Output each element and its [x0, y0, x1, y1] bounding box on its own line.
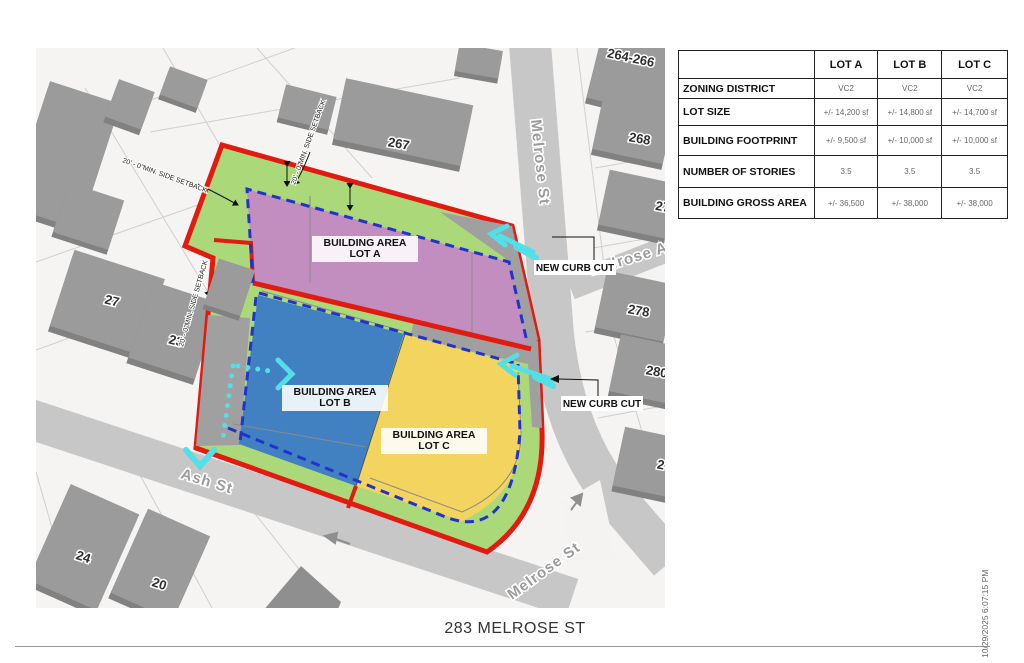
table-corner-cell — [679, 51, 815, 79]
table-row: LOT SIZE +/- 14,200 sf +/- 14,800 sf +/-… — [679, 99, 1008, 126]
title-block-rule — [15, 646, 990, 647]
table-row: NUMBER OF STORIES 3.5 3.5 3.5 — [679, 156, 1008, 188]
table-row: BUILDING FOOTPRINT +/- 9,500 sf +/- 10,0… — [679, 126, 1008, 156]
row-label-lot-size: LOT SIZE — [679, 99, 815, 126]
table-header-lot-a: LOT A — [814, 51, 878, 79]
building-footprint-lot-c: +/- 10,000 sf — [942, 126, 1008, 156]
lot-c-label-line2: LOT C — [418, 440, 450, 452]
site-plan-sheet: Melrose St Melrose Ave Ash St Melrose St… — [0, 0, 1024, 663]
gross-area-lot-c: +/- 38,000 — [942, 188, 1008, 219]
curb-cut-label-mid: NEW CURB CUT — [563, 399, 641, 410]
zoning-district-lot-b: VC2 — [878, 79, 942, 99]
row-label-building-footprint: BUILDING FOOTPRINT — [679, 126, 815, 156]
stories-lot-b: 3.5 — [878, 156, 942, 188]
row-label-building-gross-area: BUILDING GROSS AREA — [679, 188, 815, 219]
curb-cut-label-north: NEW CURB CUT — [536, 263, 614, 274]
lot-size-lot-b: +/- 14,800 sf — [878, 99, 942, 126]
building-footprint-lot-a: +/- 9,500 sf — [814, 126, 878, 156]
row-label-zoning-district: ZONING DISTRICT — [679, 79, 815, 99]
zoning-table: LOT A LOT B LOT C ZONING DISTRICT VC2 VC… — [678, 50, 1008, 219]
lot-a-label-line2: LOT A — [349, 248, 381, 260]
row-label-number-of-stories: NUMBER OF STORIES — [679, 156, 815, 188]
table-header-row: LOT A LOT B LOT C — [679, 51, 1008, 79]
building-footprint-lot-b: +/- 10,000 sf — [878, 126, 942, 156]
gross-area-lot-a: +/- 36,500 — [814, 188, 878, 219]
plot-timestamp: 10/29/2025 6:07:15 PM — [980, 523, 992, 658]
table-row: BUILDING GROSS AREA +/- 36,500 +/- 38,00… — [679, 188, 1008, 219]
table-header-lot-b: LOT B — [878, 51, 942, 79]
table-row: ZONING DISTRICT VC2 VC2 VC2 — [679, 79, 1008, 99]
parcel-label-270: 27 — [654, 198, 671, 215]
zoning-district-lot-a: VC2 — [814, 79, 878, 99]
lot-size-lot-c: +/- 14,700 sf — [942, 99, 1008, 126]
stories-lot-a: 3.5 — [814, 156, 878, 188]
zoning-district-lot-c: VC2 — [942, 79, 1008, 99]
lot-b-label-line2: LOT B — [319, 397, 351, 409]
table-header-lot-c: LOT C — [942, 51, 1008, 79]
lot-size-lot-a: +/- 14,200 sf — [814, 99, 878, 126]
stories-lot-c: 3.5 — [942, 156, 1008, 188]
sheet-title: 283 MELROSE ST — [380, 620, 650, 638]
gross-area-lot-b: +/- 38,000 — [878, 188, 942, 219]
